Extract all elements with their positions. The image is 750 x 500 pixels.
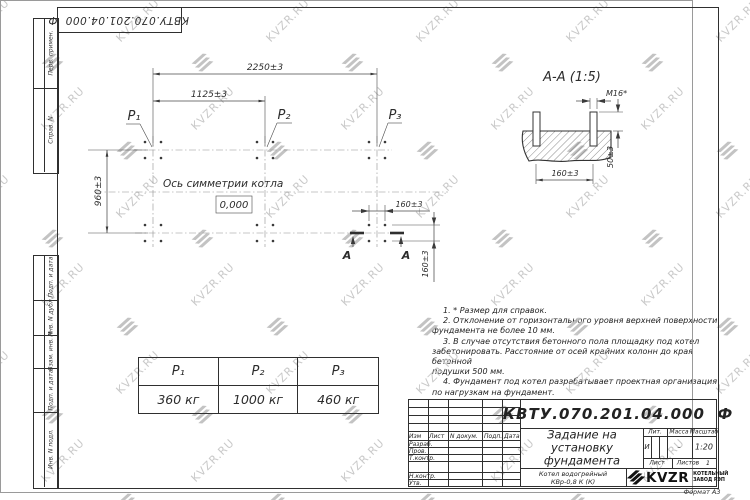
stamp-row-utv: Утв. [409,480,422,487]
stamp-doc-number: КВТУ.070.201.04.000 Ф [503,405,733,423]
stamp-lit-value: И [644,443,649,451]
title-block: Изм Лист N докум. Подп. Дата Разраб. Про… [0,0,750,500]
stamp-header-ndok: N докум. [450,433,478,440]
company-name: KVZR [646,470,689,486]
stamp-row-razrab: Разраб. [409,441,433,448]
corner-doc-number: КВТУ.070.201.04.000 Ф [48,14,189,26]
stamp-row-nkontr: Н.контр. [409,473,436,480]
stamp-product-line: КВр-0,8 К (К) [551,478,595,486]
stamp-sheets-label: Листов [677,460,699,467]
stamp-mass-header: Масса [669,429,688,436]
company-logo: KVZR КОТЕЛЬНЫЙ ЗАВОД РЭП [630,470,728,486]
stamp-lit-header: Лит. [648,429,662,436]
stamp-header-list: Лист [429,433,444,440]
drawing-sheet: KVZR.RUKVZR.RUKVZR.RUKVZR.RUKVZR.RUKVZR.… [0,0,750,500]
stamp-row-tkontr: Т.контр. [409,455,435,462]
kvzr-logo-icon [627,469,645,487]
stamp-scale-value: 1:20 [695,443,713,452]
stamp-header-podp: Подп. [484,433,502,440]
stamp-header-data: Дата [504,433,520,440]
stamp-sheets-value: 1 [706,459,710,467]
stamp-mass-value: – [677,443,681,451]
stamp-scale-header: Масштаб [690,429,719,436]
stamp-product-line: Котел водогрейный [539,470,607,478]
stamp-title-line: фундамента [544,455,620,468]
company-subtitle: КОТЕЛЬНЫЙ ЗАВОД РЭП [693,472,728,483]
corner-doc-number-stamp: КВТУ.070.201.04.000 Ф [57,7,182,33]
stamp-sheet-label: Лист [649,460,664,467]
stamp-header-izm: Изм [409,433,421,440]
format-label: Формат А3 [642,488,750,496]
